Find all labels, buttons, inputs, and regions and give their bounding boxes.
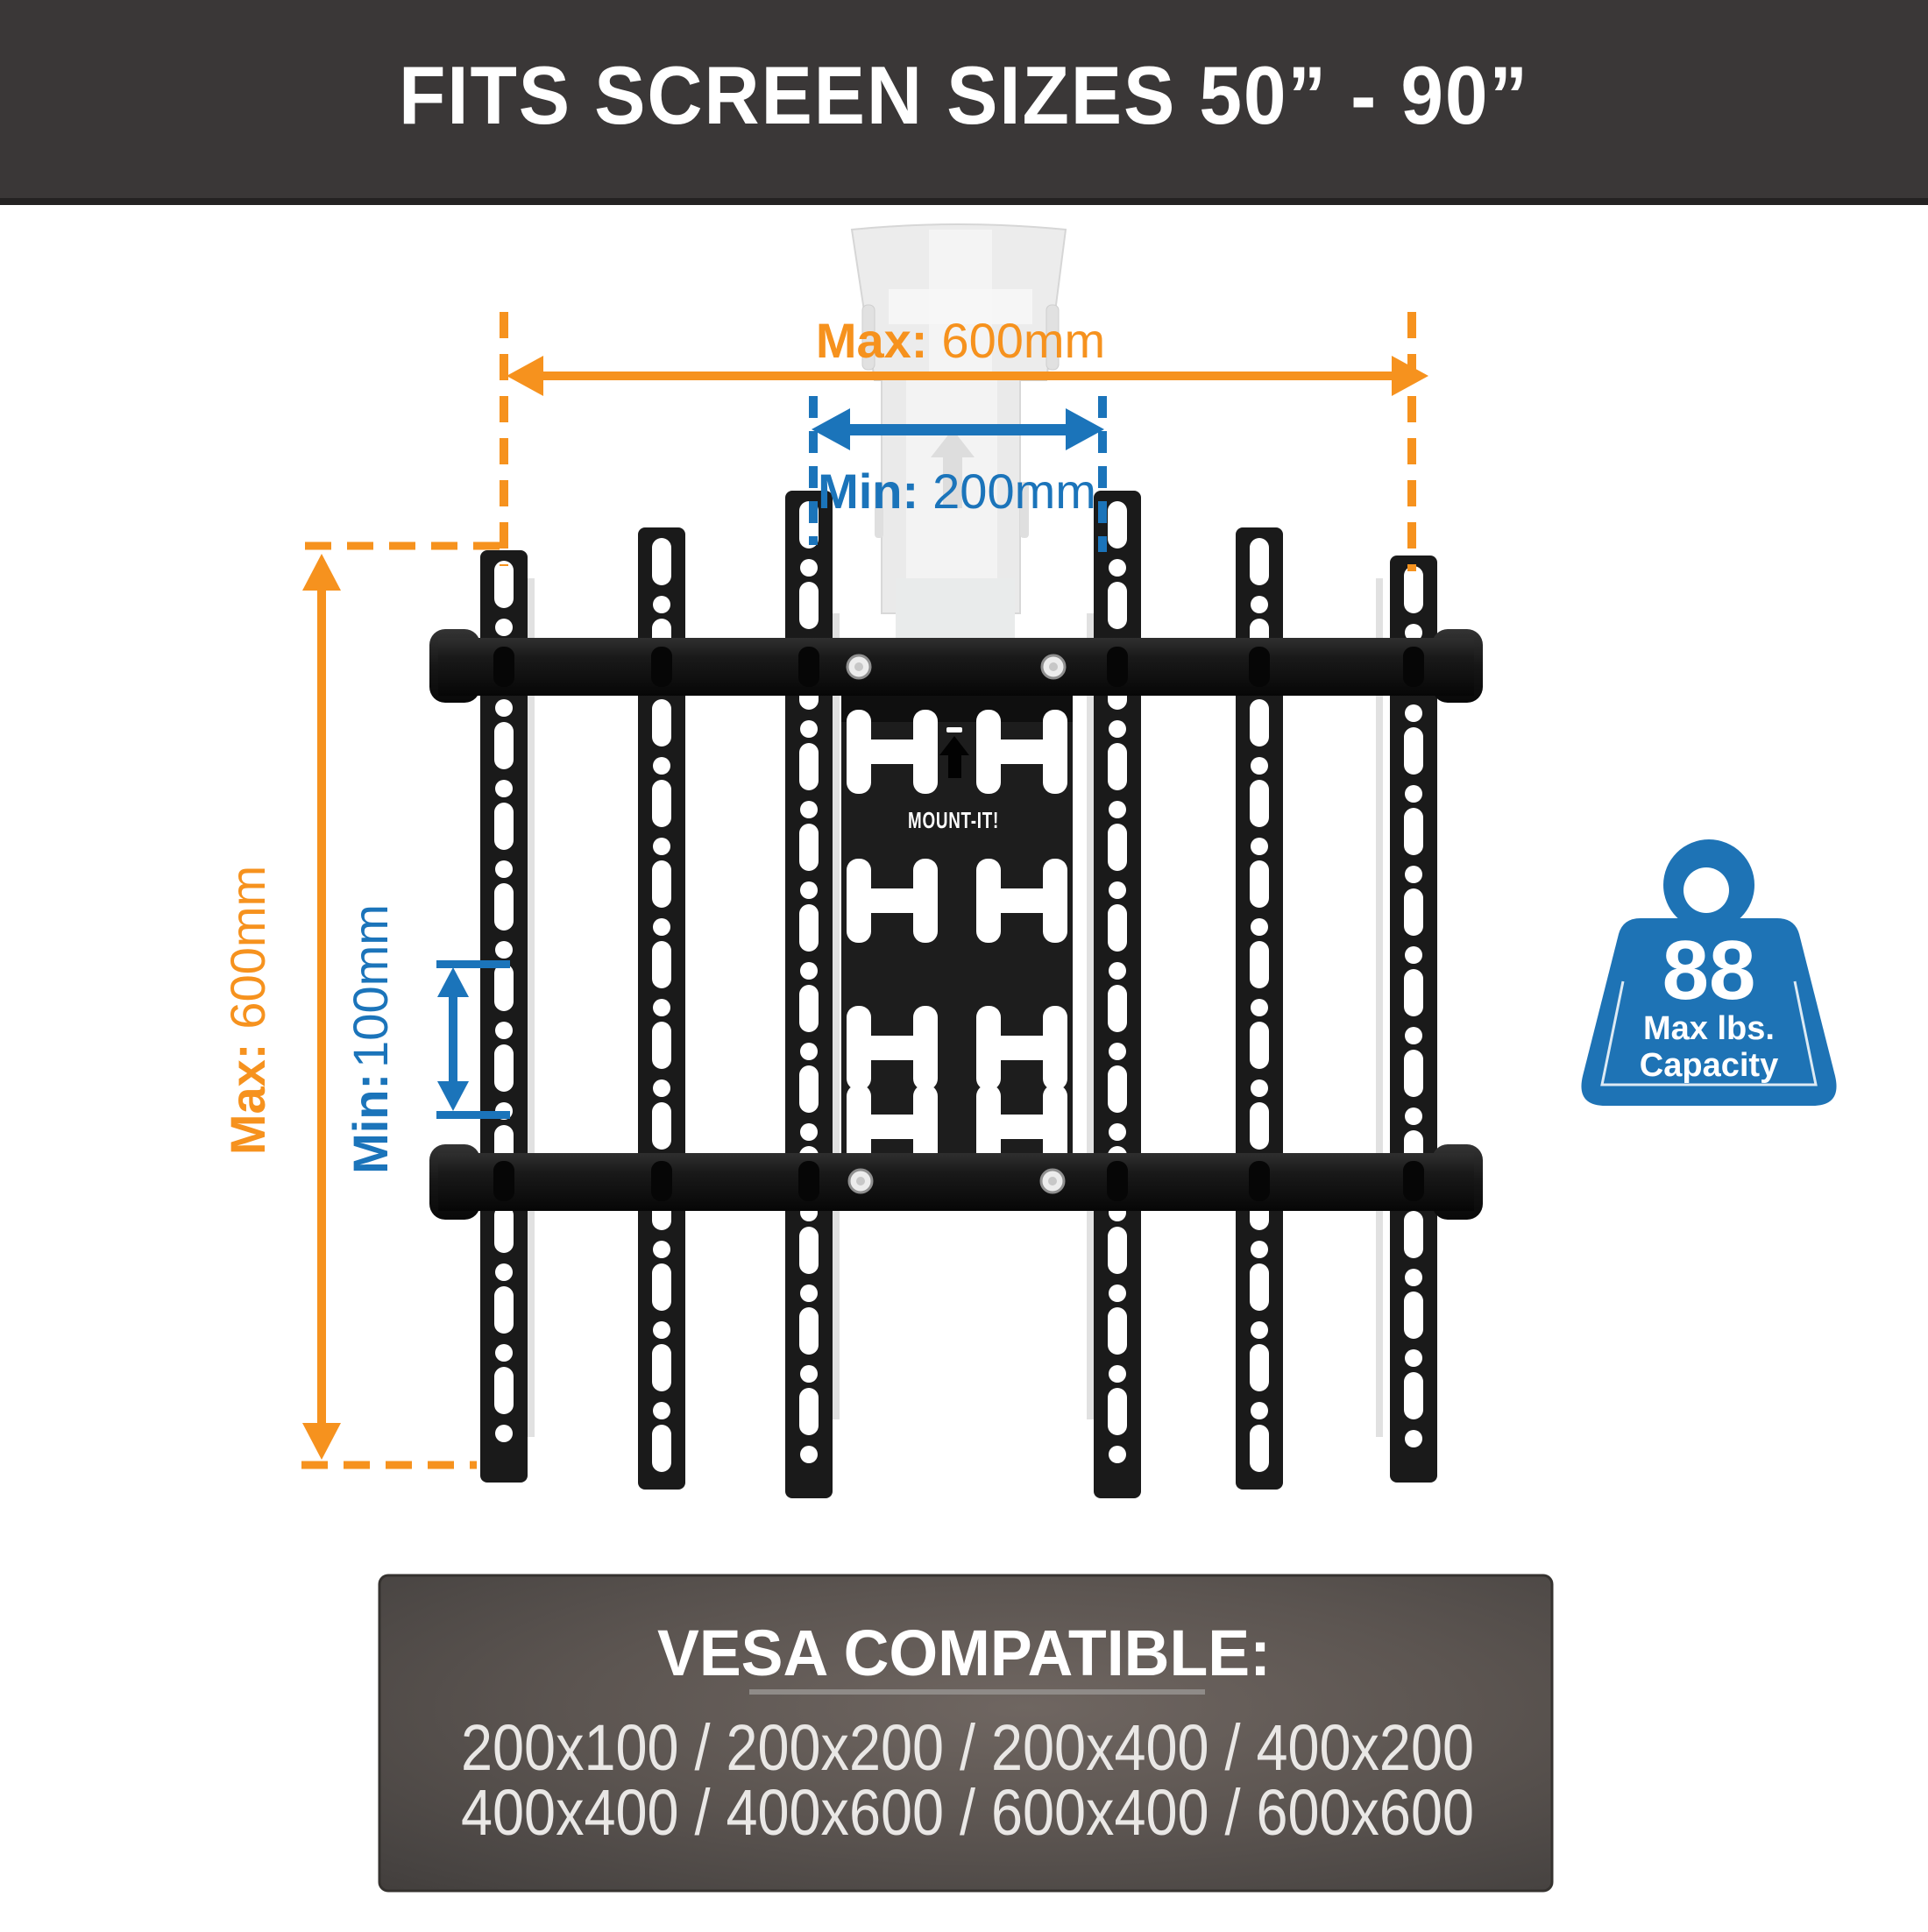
rail-slot-hole bbox=[652, 780, 671, 827]
rail-slot-hole bbox=[1108, 1388, 1127, 1435]
rail-slot-hole bbox=[1250, 941, 1269, 988]
rail-slot-hole bbox=[494, 722, 514, 769]
rail-slot-hole bbox=[1404, 566, 1423, 613]
rail-round-hole bbox=[1405, 866, 1422, 883]
weight-label: Capacity bbox=[1640, 1047, 1778, 1084]
rail-slot-hole bbox=[799, 1388, 819, 1435]
vesa-row-2: 400x400 / 400x600 / 600x400 / 600x600 bbox=[461, 1776, 1474, 1849]
infographic-canvas: FITS SCREEN SIZES 50” - 90” MOUNT-IT! bbox=[0, 0, 1928, 1928]
rail-slot-hole bbox=[494, 561, 514, 608]
rail-slot-hole bbox=[1250, 1425, 1269, 1472]
rail-slot-hole bbox=[652, 941, 671, 988]
rail-slot-hole bbox=[1404, 1050, 1423, 1097]
rail-round-hole bbox=[800, 801, 818, 818]
rail-round-hole bbox=[653, 838, 670, 855]
vesa-row-1: 200x100 / 200x200 / 200x400 / 400x200 bbox=[461, 1711, 1474, 1784]
rail-slot-hole bbox=[652, 1263, 671, 1311]
rail-round-hole bbox=[800, 1446, 818, 1463]
rail-slot-hole bbox=[1108, 582, 1127, 629]
min-width-label: Min:200mm bbox=[818, 464, 1096, 519]
crossbar-slot bbox=[493, 647, 514, 687]
crossbar-slot bbox=[1403, 1161, 1424, 1201]
center-plate: MOUNT-IT! bbox=[841, 690, 1073, 1169]
rail-slot-hole bbox=[1404, 1292, 1423, 1339]
crossbar-slot bbox=[1107, 1161, 1128, 1201]
min-width-arrow-shaft bbox=[838, 424, 1080, 435]
rail-round-hole bbox=[800, 559, 818, 577]
rail-round-hole bbox=[1405, 946, 1422, 964]
rail-round-hole bbox=[653, 757, 670, 775]
crossbar-bar bbox=[438, 1153, 1474, 1211]
rail-round-hole bbox=[1251, 596, 1268, 613]
min-height-tick-bottom bbox=[436, 1111, 510, 1119]
diagram-svg: FITS SCREEN SIZES 50” - 90” MOUNT-IT! bbox=[0, 0, 1928, 1928]
rail-slot-hole bbox=[1250, 1022, 1269, 1069]
rail-round-hole bbox=[1405, 1430, 1422, 1447]
rail-round-hole bbox=[1251, 999, 1268, 1016]
rail-round-hole bbox=[1251, 918, 1268, 936]
rail-slot-hole bbox=[1404, 1372, 1423, 1419]
screw-icon bbox=[1042, 655, 1065, 678]
crossbar-slot bbox=[493, 1161, 514, 1201]
crossbar-slot bbox=[651, 1161, 672, 1201]
rail-slot-hole bbox=[494, 1044, 514, 1092]
rail-round-hole bbox=[1251, 838, 1268, 855]
rail-round-hole bbox=[495, 780, 513, 797]
rail-slot-hole bbox=[1250, 860, 1269, 908]
rail-round-hole bbox=[653, 596, 670, 613]
silhouette-edge bbox=[1087, 613, 1094, 1419]
screw-icon bbox=[1041, 1170, 1064, 1192]
rail-slot-hole bbox=[494, 1206, 514, 1253]
rail-round-hole bbox=[1251, 1321, 1268, 1339]
brand-logo: MOUNT-IT! bbox=[908, 807, 999, 833]
crossbar-bar bbox=[438, 638, 1474, 696]
rail-round-hole bbox=[495, 860, 513, 878]
rail-slot-hole bbox=[494, 1367, 514, 1414]
rail-slot-hole bbox=[1250, 538, 1269, 585]
rail-slot-hole bbox=[1108, 904, 1127, 952]
max-width-label: Max:600mm bbox=[816, 313, 1105, 368]
rail-round-hole bbox=[1109, 1446, 1126, 1463]
rail-slot-hole bbox=[494, 1286, 514, 1334]
rail-slot-hole bbox=[1250, 780, 1269, 827]
rail-round-hole bbox=[653, 999, 670, 1016]
rail-round-hole bbox=[1109, 720, 1126, 738]
rail-round-hole bbox=[495, 941, 513, 959]
top-banner: FITS SCREEN SIZES 50” - 90” bbox=[0, 0, 1928, 205]
rail-slot-hole bbox=[799, 1307, 819, 1355]
silhouette-edge bbox=[833, 613, 840, 1419]
rail-round-hole bbox=[1251, 1241, 1268, 1258]
rail-round-hole bbox=[1109, 881, 1126, 899]
rail-round-hole bbox=[1109, 1365, 1126, 1383]
rail-slot-hole bbox=[1250, 1344, 1269, 1391]
silhouette-edge bbox=[528, 578, 535, 1437]
rail-round-hole bbox=[1405, 785, 1422, 803]
rail-slot-hole bbox=[799, 904, 819, 952]
weight-value: 88 bbox=[1662, 924, 1756, 1017]
rail-slot-hole bbox=[1108, 1227, 1127, 1274]
rail-slot-hole bbox=[1404, 1211, 1423, 1258]
ghost-column-base bbox=[896, 578, 1015, 640]
banner-title: FITS SCREEN SIZES 50” - 90” bbox=[399, 49, 1529, 141]
rail-slot-hole bbox=[652, 1344, 671, 1391]
rail-round-hole bbox=[495, 1263, 513, 1281]
rail-round-hole bbox=[1109, 962, 1126, 980]
rail-round-hole bbox=[800, 1123, 818, 1141]
rail-slot-hole bbox=[1108, 985, 1127, 1032]
rail-round-hole bbox=[1405, 1027, 1422, 1044]
rail-slot-hole bbox=[1108, 824, 1127, 871]
rail-slot-hole bbox=[1108, 501, 1127, 548]
rail-slot-hole bbox=[799, 582, 819, 629]
rail-round-hole bbox=[1109, 1284, 1126, 1302]
weight-unit: Max lbs. bbox=[1643, 1010, 1775, 1047]
rail-slot-hole bbox=[799, 824, 819, 871]
crossbar-top bbox=[429, 629, 1483, 703]
rail-slot-hole bbox=[1250, 1263, 1269, 1311]
rail-slot-hole bbox=[494, 803, 514, 850]
rail-round-hole bbox=[1405, 704, 1422, 722]
rail-round-hole bbox=[1109, 801, 1126, 818]
screw-icon bbox=[847, 655, 870, 678]
crossbar-slot bbox=[1249, 1161, 1270, 1201]
rail-slot-hole bbox=[1250, 699, 1269, 747]
max-height-arrow-shaft bbox=[317, 571, 326, 1449]
rail-round-hole bbox=[800, 1284, 818, 1302]
rail-slot-hole bbox=[1404, 969, 1423, 1016]
vesa-heading: VESA COMPATIBLE: bbox=[657, 1617, 1271, 1689]
rail-round-hole bbox=[800, 962, 818, 980]
rail-slot-hole bbox=[1404, 888, 1423, 936]
crossbar-slot bbox=[1249, 647, 1270, 687]
rail-round-hole bbox=[1251, 757, 1268, 775]
rail-round-hole bbox=[1109, 1123, 1126, 1141]
vesa-panel: VESA COMPATIBLE: 200x100 / 200x200 / 200… bbox=[379, 1575, 1552, 1891]
rail-slot-hole bbox=[652, 1022, 671, 1069]
rail-round-hole bbox=[800, 1043, 818, 1060]
rail-round-hole bbox=[1109, 1043, 1126, 1060]
rail-slot-hole bbox=[1404, 727, 1423, 775]
crossbar-slot bbox=[798, 647, 819, 687]
rail-round-hole bbox=[1109, 559, 1126, 577]
rail-slot-hole bbox=[1404, 808, 1423, 855]
rail-round-hole bbox=[495, 1425, 513, 1442]
rail-slot-hole bbox=[494, 883, 514, 931]
rail-slot-hole bbox=[799, 1065, 819, 1113]
rail-slot-hole bbox=[652, 1102, 671, 1150]
crossbar-slot bbox=[798, 1161, 819, 1201]
crossbar-bottom bbox=[429, 1144, 1483, 1220]
rail-slot-hole bbox=[494, 964, 514, 1011]
plate-arrow-mark bbox=[946, 727, 962, 732]
rail-slot-hole bbox=[652, 860, 671, 908]
rail-round-hole bbox=[1405, 1349, 1422, 1367]
rail-round-hole bbox=[653, 918, 670, 936]
rail-slot-hole bbox=[652, 538, 671, 585]
rail-round-hole bbox=[1251, 1402, 1268, 1419]
crossbar-slot bbox=[1107, 647, 1128, 687]
rail-round-hole bbox=[800, 881, 818, 899]
rail-round-hole bbox=[653, 1241, 670, 1258]
min-height-tick-top bbox=[436, 960, 510, 968]
plate-up-arrow-stem bbox=[948, 755, 961, 778]
rail-slot-hole bbox=[1108, 1307, 1127, 1355]
rail-slot-hole bbox=[652, 1425, 671, 1472]
max-height-label: Max:600mm bbox=[220, 866, 275, 1155]
rail-slot-hole bbox=[799, 985, 819, 1032]
crossbar-slot bbox=[651, 647, 672, 687]
weight-ring-hole bbox=[1683, 867, 1729, 913]
rail-round-hole bbox=[653, 1321, 670, 1339]
rail-slot-hole bbox=[652, 699, 671, 747]
rail-round-hole bbox=[1405, 1269, 1422, 1286]
rail-slot-hole bbox=[1250, 1102, 1269, 1150]
rail-round-hole bbox=[495, 1022, 513, 1039]
rail-round-hole bbox=[495, 1344, 513, 1362]
rail-round-hole bbox=[653, 1402, 670, 1419]
max-width-arrow-shaft bbox=[524, 372, 1411, 380]
rail-slot-hole bbox=[1108, 1065, 1127, 1113]
rail-round-hole bbox=[1251, 1079, 1268, 1097]
vesa-heading-underline bbox=[749, 1689, 1205, 1695]
rail-round-hole bbox=[495, 699, 513, 717]
rail-round-hole bbox=[800, 1365, 818, 1383]
rail-round-hole bbox=[495, 619, 513, 636]
rail-round-hole bbox=[800, 720, 818, 738]
rail-slot-hole bbox=[799, 1227, 819, 1274]
rail-slot-hole bbox=[799, 743, 819, 790]
crossbar-slot bbox=[1403, 647, 1424, 687]
silhouette-edge bbox=[1376, 578, 1383, 1437]
rail-slot-hole bbox=[1108, 743, 1127, 790]
banner-divider bbox=[0, 198, 1928, 205]
rail-round-hole bbox=[1405, 1108, 1422, 1125]
rail-round-hole bbox=[653, 1079, 670, 1097]
min-height-label: Min:100mm bbox=[343, 904, 398, 1174]
screw-icon bbox=[849, 1170, 872, 1192]
